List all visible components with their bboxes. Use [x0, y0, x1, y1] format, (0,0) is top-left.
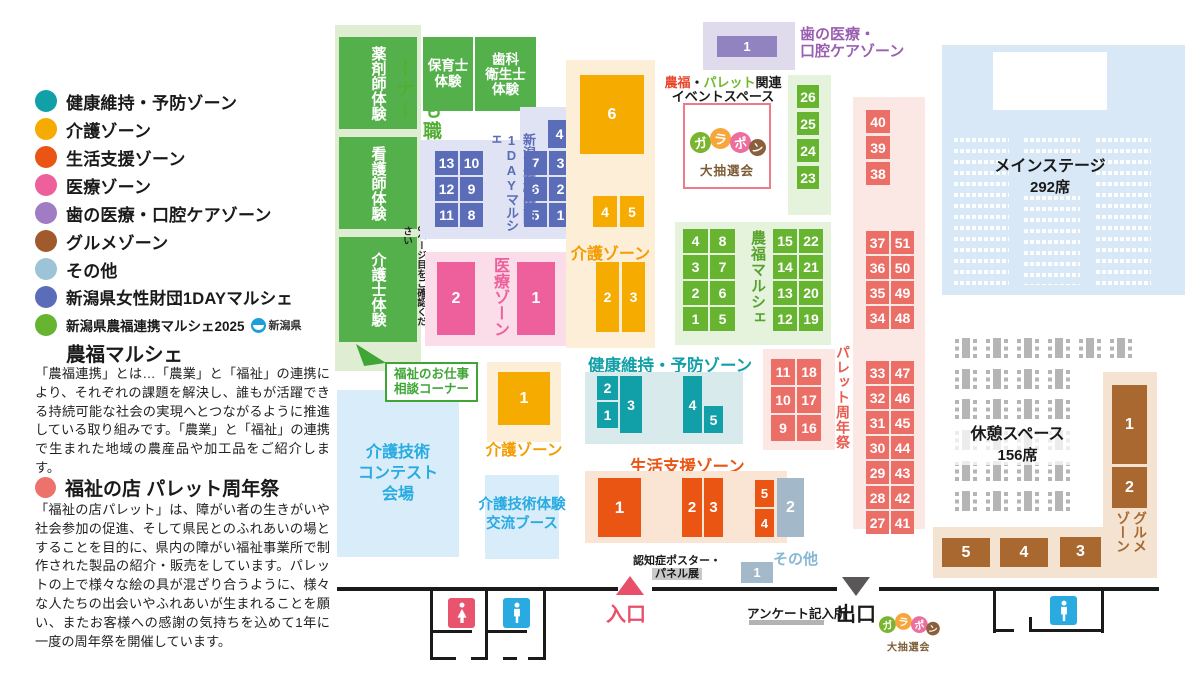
booth-cell: 44 — [891, 436, 914, 459]
garapon-circle: ガ — [878, 615, 897, 634]
stage-platform — [993, 52, 1107, 110]
restroom-wall — [488, 630, 527, 633]
legend-item: 歯の医療・口腔ケアゾーン — [35, 202, 331, 224]
kenko-zone-swatch — [35, 90, 57, 112]
booth-cell: 45 — [891, 411, 914, 434]
booth-cell: 18 — [797, 359, 821, 385]
booth-cell: 3 — [620, 376, 642, 433]
garapon-subtitle: 大抽選会 — [875, 639, 942, 654]
main-stage-title: メインステージ — [980, 152, 1120, 176]
booth-cell: 12 — [435, 177, 458, 201]
palette-swatch — [35, 477, 56, 498]
restroom-wall — [528, 657, 546, 660]
booth-shika-eiseishi: 歯科 衛生士 体験 — [475, 37, 536, 111]
booth-cell: 42 — [891, 486, 914, 509]
restroom-wall — [1029, 629, 1104, 632]
wall-segment — [652, 587, 837, 591]
booth-cell: 14 — [773, 255, 797, 279]
legend-label: その他 — [66, 257, 118, 282]
event-space-title: 農福・パレット関連 イベントスペース — [663, 76, 783, 104]
oneday-booth-grid-left: 1310129118 — [435, 151, 483, 227]
legend-label: 生活支援ゾーン — [66, 145, 186, 170]
booth-cell: 28 — [866, 486, 889, 509]
table-icon — [1017, 398, 1039, 420]
nofuku-booth-col: 26252423 — [797, 85, 819, 189]
restroom-wall — [993, 589, 996, 633]
event-floor-map: { "colors":{ "kenko_teal":"#12a0a8","kai… — [0, 0, 1200, 680]
booth-cell: 2 — [682, 478, 702, 537]
booth-cell: 38 — [866, 162, 890, 185]
garapon-exit-logo: ガ ラ ポ ン 大抽選会 — [875, 597, 942, 655]
restroom-wall — [503, 657, 517, 660]
taiken-booth-label: 介護技術体験 交流ブース — [466, 496, 578, 534]
booth-cell: 7 — [710, 255, 735, 279]
garapon-subtitle: 大抽選会 — [685, 160, 769, 179]
legend: 健康維持・予防ゾーン 介護ゾーン 生活支援ゾーン 医療ゾーン 歯の医療・口腔ケア… — [35, 90, 331, 367]
booth-cell: 9 — [771, 415, 795, 441]
table-icon — [1017, 337, 1039, 359]
booth-cell: 39 — [866, 136, 890, 159]
booth-cell: 13 — [435, 151, 458, 175]
palette-heading: 福祉の店 パレット周年祭 — [35, 474, 279, 501]
booth-cell: 35 — [866, 281, 889, 304]
palette-description: 「福祉の店パレット」は、障がい者の生きがいや社会参加の促進、そして県民とのふれあ… — [35, 501, 330, 651]
table-icon — [955, 398, 977, 420]
nofuku-line1: 新潟県農福連携マルシェ2025 — [66, 315, 245, 335]
booth-cell-6: 6 — [580, 75, 644, 154]
restroom-wall — [485, 589, 488, 660]
legend-item: グルメゾーン — [35, 230, 331, 252]
table-icon — [955, 368, 977, 390]
booth-cell: 1 — [517, 262, 555, 335]
main-stage-caption: メインステージ 292席 — [980, 152, 1120, 197]
booth-cell: 15 — [773, 229, 797, 253]
booth-cell: 48 — [891, 306, 914, 329]
booth-cell: 33 — [866, 361, 889, 384]
booth-cell: 1 — [1112, 385, 1147, 464]
booth-cell: 4 — [1000, 538, 1048, 567]
booth-cell: 1 — [598, 478, 641, 537]
booth-cell: 31 — [866, 411, 889, 434]
restroom-wall — [543, 589, 546, 660]
table-icon — [1110, 337, 1132, 359]
mens-restroom-icon — [1050, 596, 1077, 625]
ha-zone-swatch — [35, 202, 57, 224]
booth-cell: 30 — [866, 436, 889, 459]
gourmet-zone-label: グルメ ゾーン — [1114, 511, 1148, 573]
garapon-circle: ラ — [709, 127, 733, 151]
table-icon — [986, 490, 1008, 512]
table-icon — [1079, 337, 1101, 359]
legend-label: グルメゾーン — [66, 229, 168, 254]
iryo-zone-label: 医療ゾーン — [487, 257, 511, 345]
booth-cell: 20 — [799, 281, 823, 305]
gourmet-zone-swatch — [35, 230, 57, 252]
niigata-pref-icon — [251, 318, 266, 333]
booth-cell: 11 — [435, 203, 458, 227]
booth-cell: 29 — [866, 461, 889, 484]
table-icon — [986, 398, 1008, 420]
booth-cell: 25 — [797, 112, 819, 135]
restroom-wall — [430, 589, 433, 660]
booth-cell: 5 — [942, 538, 990, 567]
booth-cell: 36 — [866, 256, 889, 279]
booth-cell: 11 — [771, 359, 795, 385]
booth-cell-other: 2 — [777, 478, 804, 537]
sonota-label: その他 — [773, 548, 818, 569]
entrance-arrow-icon — [616, 576, 644, 595]
kids-corner-note: 3ページ目をご確認ください — [399, 226, 427, 334]
restroom-wall — [471, 657, 488, 660]
booth-cell: 32 — [866, 386, 889, 409]
legend-label: 医療ゾーン — [66, 173, 151, 198]
niigata-pref-label: 新潟県 — [269, 317, 302, 333]
booth-cell: 1 — [717, 36, 777, 57]
booth-cell: 23 — [797, 166, 819, 189]
legend-item: その他 — [35, 258, 331, 280]
booth-cell: 4 — [593, 196, 617, 227]
legend-item: 生活支援ゾーン — [35, 146, 331, 168]
booth-cell: 43 — [891, 461, 914, 484]
consult-callout: 福祉のお仕事 相談コーナー — [385, 362, 478, 402]
table-icon — [1017, 490, 1039, 512]
booth-cell: 4 — [683, 229, 708, 253]
booth-cell: 12 — [773, 307, 797, 331]
booth-cell: 9 — [460, 177, 483, 201]
palette-fest-label: パレット周年祭 — [833, 345, 853, 467]
booth-cell: 16 — [797, 415, 821, 441]
booth-cell: 22 — [799, 229, 823, 253]
booth-cell-other: 1 — [741, 562, 773, 583]
booth-cell: 2 — [596, 262, 619, 332]
booth-cell: 10 — [771, 387, 795, 413]
dementia-line1: 認知症ポスター・ — [633, 555, 721, 567]
garapon-logo: ガ ラ ポ ン 大抽選会 — [685, 108, 769, 180]
sonota-swatch — [35, 258, 57, 280]
event-word-palette: パレット — [704, 75, 756, 90]
dementia-line2: パネル展 — [652, 568, 702, 580]
palette-booth-grid-a: 3751365035493448 — [866, 231, 914, 329]
palette-booth-grid-b: 3347324631453044294328422741 — [866, 361, 914, 534]
booth-cell: 40 — [866, 110, 890, 133]
restroom-wall — [433, 630, 472, 633]
mens-restroom-icon — [503, 598, 530, 628]
nofuku-marche-label: 農福マルシェ — [747, 230, 768, 342]
iryo-zone-swatch — [35, 174, 57, 196]
booth-cell: 46 — [891, 386, 914, 409]
nofuku-heading: 農福マルシェ — [66, 338, 331, 367]
rest-space-caption: 休憩スペース 156席 — [950, 420, 1085, 465]
stage-seats-center — [1022, 196, 1080, 285]
booth-cell-1: 1 — [498, 372, 550, 425]
legend-item: 新潟県女性財団1DAYマルシェ — [35, 286, 331, 308]
booth-cell: 51 — [891, 231, 914, 254]
rest-table-row — [955, 337, 1132, 359]
kaigo-booth-pair: 45 — [593, 196, 644, 227]
booth-cell: 49 — [891, 281, 914, 304]
garapon-circle: ン — [925, 620, 941, 636]
garapon-circle: ラ — [894, 612, 913, 631]
rest-table-row — [955, 490, 1070, 512]
booth-cell: 26 — [797, 85, 819, 108]
legend-label: 健康維持・予防ゾーン — [66, 89, 237, 114]
legend-label: 介護ゾーン — [66, 117, 151, 142]
booth-cell: 24 — [797, 139, 819, 162]
booth-cell: 8 — [710, 229, 735, 253]
legend-item: 医療ゾーン — [35, 174, 331, 196]
womens-restroom-icon — [448, 598, 475, 628]
wall-segment — [879, 587, 1159, 591]
booth-cell: 2 — [683, 281, 708, 305]
booth-cell: 1 — [683, 307, 708, 331]
booth-cell: 47 — [891, 361, 914, 384]
stage-seats-center-top — [1022, 138, 1080, 153]
booth-cell: 50 — [891, 256, 914, 279]
contest-area-label: 介護技術 コンテスト 会場 — [337, 442, 459, 505]
palette-title: 福祉の店 パレット周年祭 — [65, 474, 279, 501]
legend-item: 健康維持・予防ゾーン — [35, 90, 331, 112]
booth-cell: 19 — [799, 307, 823, 331]
kaigo-booth-pair-tall: 23 — [596, 262, 645, 332]
palette-booth-grid-small: 11181017916 — [771, 359, 821, 441]
event-line2: イベントスペース — [672, 89, 774, 104]
event-word-nofuku: 農福 — [664, 75, 690, 90]
legend-item-nofuku: 新潟県農福連携マルシェ2025 新潟県 — [35, 314, 331, 336]
palette-booth-col: 403938 — [866, 110, 890, 185]
booth-cell: 8 — [460, 203, 483, 227]
booth-cell: 17 — [797, 387, 821, 413]
booth-cell: 37 — [866, 231, 889, 254]
booth-cell: 2 — [597, 376, 618, 400]
table-icon — [1048, 490, 1070, 512]
garapon-event-box: ガ ラ ポ ン 大抽選会 — [683, 103, 771, 189]
table-icon — [1048, 368, 1070, 390]
booth-cell: 3 — [683, 255, 708, 279]
nofuku-description: 「農福連携」とは…「農業」と「福祉」の連携により、それぞれの課題を解決し、誰もが… — [35, 365, 330, 478]
booth-cell: 3 — [1060, 537, 1101, 567]
restroom-wall — [431, 657, 456, 660]
rest-space-seatcount: 156席 — [950, 444, 1085, 465]
nofuku-booth-grid-right: 1522142113201219 — [773, 229, 823, 331]
nofuku-booth-grid-left: 48372615 — [683, 229, 735, 331]
table-icon — [986, 368, 1008, 390]
booth-cell: 21 — [799, 255, 823, 279]
booth-cell: 2 — [1112, 467, 1147, 508]
booth-cell: 5 — [710, 307, 735, 331]
survey-station-bar — [749, 620, 824, 625]
booth-cell: 1 — [597, 402, 618, 428]
rest-table-row — [955, 398, 1070, 420]
booth-cell: 41 — [891, 511, 914, 534]
garapon-circle: ガ — [688, 130, 712, 154]
table-icon — [955, 490, 977, 512]
exit-arrow-icon — [842, 577, 870, 596]
table-icon — [1017, 368, 1039, 390]
legend-label: 歯の医療・口腔ケアゾーン — [66, 201, 272, 226]
booth-hoikushi: 保育士 体験 — [423, 37, 473, 111]
event-dot: ・ — [690, 75, 703, 90]
booth-cell: 5 — [620, 196, 644, 227]
wall-segment — [337, 587, 618, 591]
restroom-wall — [995, 629, 1014, 632]
legend-label: 新潟県女性財団1DAYマルシェ — [66, 285, 293, 309]
booth-cell: 4 — [755, 509, 774, 537]
booth-cell: 2 — [437, 262, 475, 335]
booth-cell: 27 — [866, 511, 889, 534]
booth-cell: 34 — [866, 306, 889, 329]
kaigo-zone-label: 介護ゾーン — [566, 240, 655, 264]
booth-cell: 13 — [773, 281, 797, 305]
table-icon — [986, 337, 1008, 359]
kaigo-sub-label: 介護ゾーン — [483, 438, 565, 460]
table-icon — [955, 337, 977, 359]
booth-cell: 3 — [704, 478, 723, 537]
booth-cell: 10 — [460, 151, 483, 175]
legend-item: 介護ゾーン — [35, 118, 331, 140]
nofuku-swatch — [35, 314, 57, 336]
restroom-wall — [1101, 589, 1104, 633]
oneday-marche-label: 新潟県女性財団 1DAYマルシェ — [486, 133, 537, 235]
booth-cell: 5 — [704, 406, 723, 433]
table-icon — [1048, 337, 1070, 359]
ha-zone-label: 歯の医療・ 口腔ケアゾーン — [800, 26, 904, 60]
booth-cell: 4 — [683, 376, 702, 433]
entrance-label: 入口 — [606, 598, 646, 627]
kaigo-zone-swatch — [35, 118, 57, 140]
oneday-swatch — [35, 286, 57, 308]
table-icon — [1048, 398, 1070, 420]
rest-table-row — [955, 368, 1070, 390]
main-stage-seatcount: 292席 — [980, 176, 1120, 197]
rest-space-title: 休憩スペース — [950, 420, 1085, 444]
event-word-kanren: 関連 — [756, 75, 782, 90]
booth-cell: 3 — [622, 262, 645, 332]
booth-cell: 5 — [755, 480, 774, 507]
seikatsu-zone-swatch — [35, 146, 57, 168]
booth-cell: 6 — [710, 281, 735, 305]
